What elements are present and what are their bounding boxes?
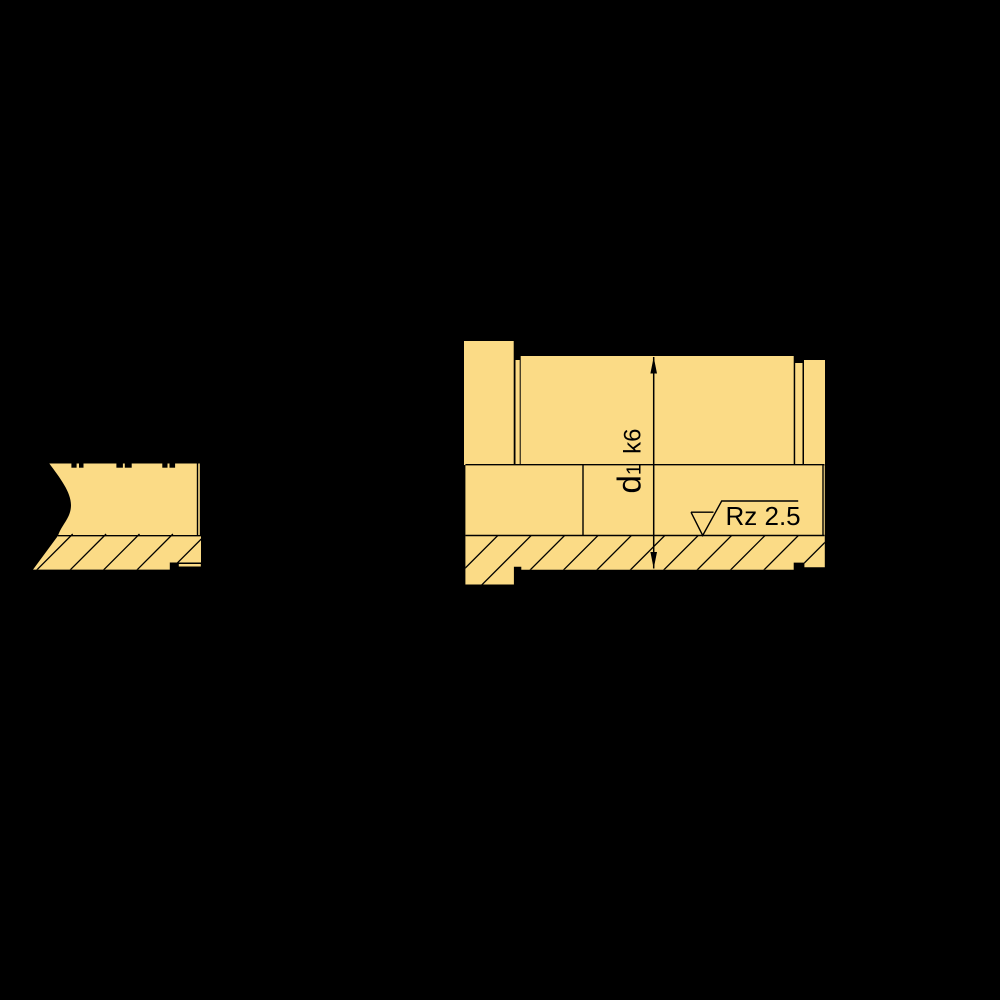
- svg-text:Rz 2.5: Rz 2.5: [726, 501, 801, 531]
